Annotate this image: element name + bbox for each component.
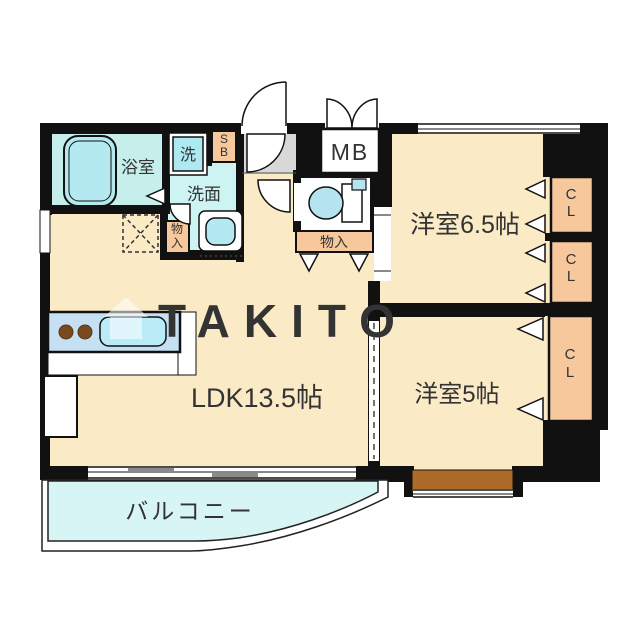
label-bath: 浴室 (121, 158, 155, 177)
wall-corner-top-right (543, 128, 608, 177)
wall-left-upper (40, 123, 52, 215)
label-washroom: 洗面 (187, 185, 221, 204)
toilet-lid-box (352, 179, 366, 190)
kitchen-counter-edge (48, 350, 196, 375)
toilet-door-opening (294, 183, 302, 221)
label-closet-3: CL (565, 346, 576, 381)
wall-bottom-left (40, 466, 88, 480)
window-left (40, 210, 50, 253)
room1-door-opening (374, 207, 391, 281)
bathtub (64, 136, 116, 206)
label-closet-2: CL (566, 251, 577, 285)
wall-corner-bottom-right (543, 420, 600, 482)
label-storage-toilet: 物入 (320, 234, 348, 250)
label-storage-hall: 物入 (171, 222, 183, 250)
balcony-sliding-window (88, 466, 356, 479)
toilet-bowl (309, 187, 343, 219)
wall-sill-cap-right (512, 470, 523, 497)
watermark-text: TAKITO (158, 295, 409, 347)
mb-double-doors (327, 99, 377, 128)
counter-cabinet (44, 376, 77, 437)
label-meter-box: MB (331, 139, 370, 165)
washbasin-bowl (206, 218, 235, 245)
label-balcony: バルコニー (125, 498, 255, 524)
bathroom-fixtures (64, 136, 116, 206)
label-washer: 洗 (180, 146, 196, 164)
stove-burner (59, 325, 73, 339)
label-western-room-2: 洋室5帖 (414, 381, 499, 408)
wall-cl-divider-2 (545, 303, 608, 316)
entrance-door-swing (242, 82, 286, 126)
label-shoe-box: SB (220, 132, 228, 159)
label-western-room-1: 洋室6.5帖 (410, 211, 520, 239)
wall-entrance-mb (296, 123, 323, 178)
stove-burner (78, 325, 92, 339)
label-ldk: LDK13.5帖 (191, 383, 323, 413)
label-closet-1: CL (566, 186, 577, 220)
floor-plan-drawing: TAKITO 浴室 洗 洗面 SB MB 物入 物入 洋室6.5帖 洋室5帖 L… (0, 0, 640, 639)
window-sill (412, 470, 513, 492)
entrance-opening (241, 123, 287, 134)
room2-window (412, 470, 513, 498)
window-top (418, 123, 580, 134)
floor-plan: TAKITO 浴室 洗 洗面 SB MB 物入 物入 洋室6.5帖 洋室5帖 L… (0, 0, 640, 639)
